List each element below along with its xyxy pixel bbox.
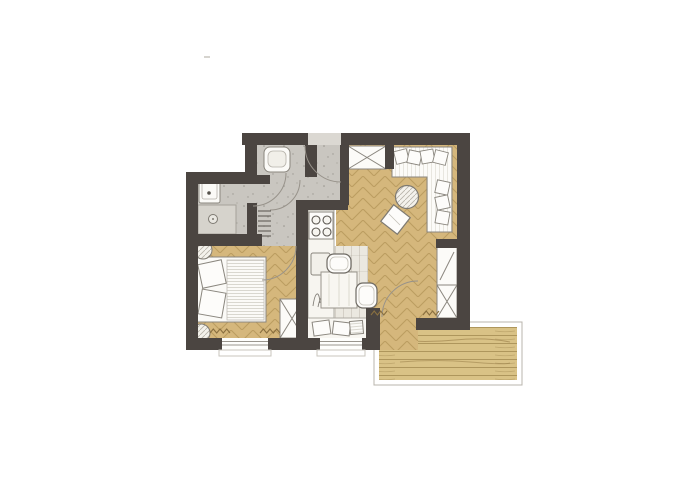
floor-plan-page bbox=[0, 0, 700, 500]
wall-top-right bbox=[341, 133, 470, 145]
floor-plan-drawing bbox=[0, 0, 700, 500]
shower-drain-dot bbox=[212, 218, 214, 220]
wall-step bbox=[186, 172, 254, 184]
burner-1 bbox=[312, 216, 320, 224]
wall-sideboard-stub bbox=[436, 239, 457, 248]
bed-pillow-2 bbox=[198, 289, 226, 318]
burner-3 bbox=[312, 228, 320, 236]
wall-bottom-b bbox=[268, 338, 320, 350]
wall-wardrobe-stub bbox=[385, 145, 394, 169]
wall-bottom-c bbox=[362, 338, 378, 350]
wall-hall-living bbox=[340, 145, 349, 205]
entry-threshold bbox=[308, 133, 341, 145]
wall-bottom-right bbox=[416, 318, 457, 330]
floor-balcony-door bbox=[378, 300, 418, 350]
entry-wardrobe bbox=[348, 146, 386, 169]
sofa-pillow-4 bbox=[433, 150, 449, 166]
burner-2 bbox=[323, 216, 331, 224]
wall-wc-stub bbox=[245, 175, 270, 184]
bench-pillow-2 bbox=[332, 321, 350, 336]
sofa-pillow-5 bbox=[435, 180, 450, 195]
sofa-pillow-6 bbox=[435, 195, 450, 210]
washbasin-tap-dot bbox=[207, 191, 211, 195]
bench-pillow-1 bbox=[312, 320, 331, 336]
window-dining bbox=[320, 338, 362, 350]
toilet-bowl-inner bbox=[268, 151, 286, 167]
bed-duvet bbox=[227, 260, 264, 320]
wall-bath-bedroom bbox=[186, 234, 262, 246]
window-bedroom bbox=[222, 338, 268, 350]
wall-left bbox=[186, 172, 198, 350]
coffee-table bbox=[396, 186, 419, 209]
window-dining-sill bbox=[317, 350, 365, 356]
burner-4 bbox=[323, 228, 331, 236]
bed-pillow-1 bbox=[198, 260, 226, 288]
bench-pillow-3 bbox=[349, 320, 363, 334]
wall-kitchen bbox=[296, 200, 308, 350]
living-wardrobe bbox=[437, 285, 457, 318]
wall-wc-right bbox=[305, 145, 317, 177]
window-bedroom-sill bbox=[219, 350, 271, 356]
sofa-pillow-7 bbox=[435, 210, 450, 225]
wall-right bbox=[457, 145, 470, 330]
